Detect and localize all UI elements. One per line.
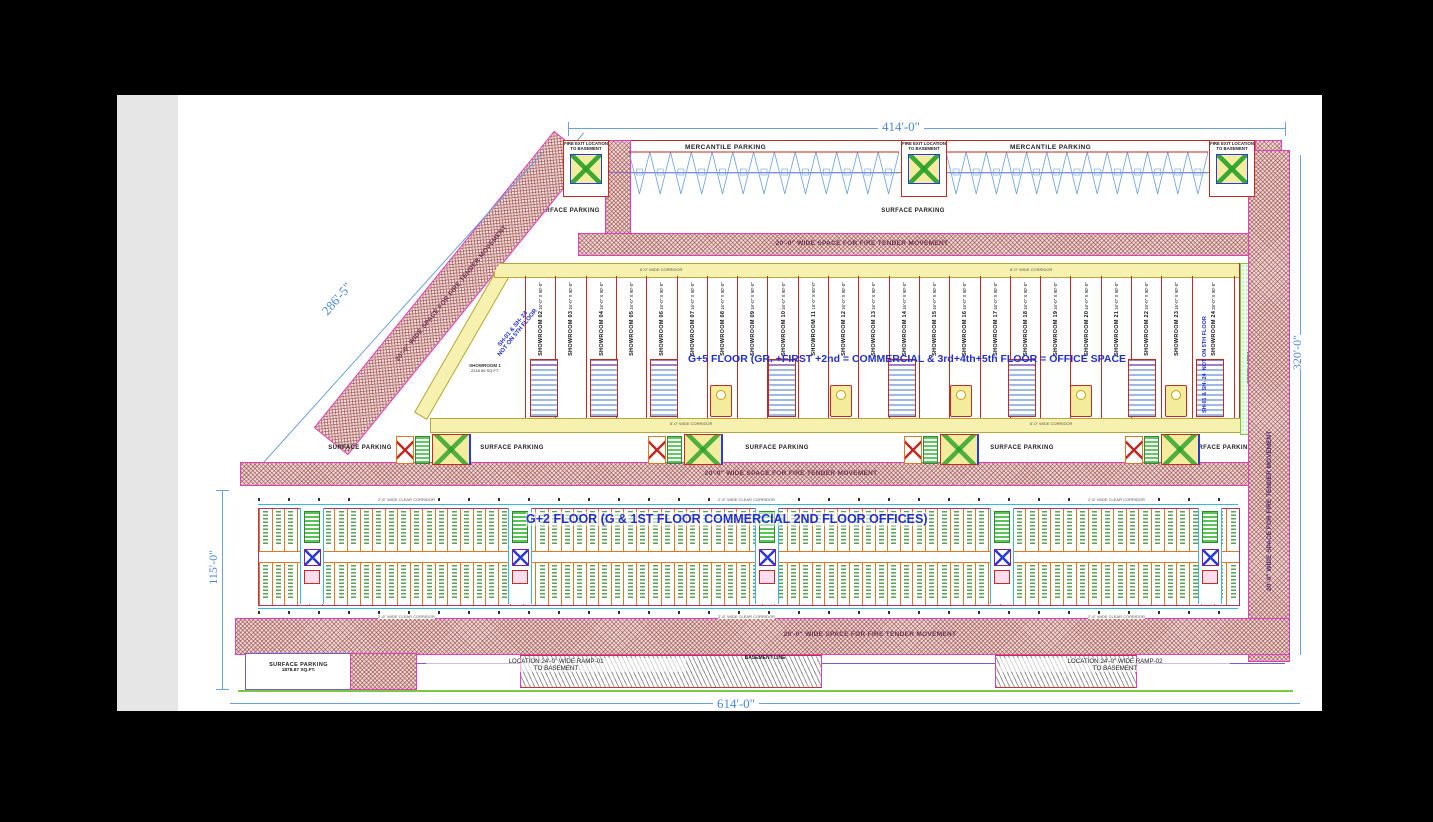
shop-cell — [787, 563, 800, 605]
showroom-size: 16'-0" X 90'-0" — [1114, 282, 1119, 310]
service-core — [1165, 385, 1187, 417]
stair-icon — [415, 436, 430, 464]
clear-corridor-label: 2'-6" WIDE CLEAR CORRIDOR — [718, 497, 775, 502]
shop-cell — [334, 563, 347, 605]
lift-icon — [1202, 549, 1219, 566]
shop-cell — [686, 563, 699, 605]
lower-stair-core — [1198, 508, 1222, 604]
shop-cell — [724, 563, 737, 605]
shop-cell — [485, 563, 498, 605]
g5-floor-annotation: G+5 FLOOR (GR. +FIRST +2nd = COMMERCIAL … — [688, 353, 1126, 365]
showroom-label-wrap: SHOWROOM 1216'-0" X 90'-0" — [829, 282, 859, 356]
lift-stair-core — [888, 359, 916, 417]
showroom-name: SHOWROOM 06 — [659, 311, 665, 356]
corridor-label: 8'-0" WIDE CORRIDOR — [640, 267, 682, 272]
shop-cell — [372, 509, 385, 551]
shop-cell — [485, 509, 498, 551]
shop-cell — [1164, 509, 1177, 551]
fire-exit-room-icon — [940, 434, 979, 465]
surface-parking-box: SURFACE PARKING 1878.87 SQ.FT. — [245, 653, 352, 690]
showroom-name: SHOWROOM 13 — [871, 311, 877, 356]
surface-parking-label-mid: SURFACE PARKING — [717, 445, 837, 451]
shop-cell — [385, 563, 398, 605]
showroom-label: SHOWROOM 0816'-0" X 90'-0" — [714, 282, 732, 356]
shop-cell — [1076, 509, 1089, 551]
shop-cell — [435, 563, 448, 605]
shop-cell — [460, 563, 473, 605]
mercantile-parking-label-2: MERCANTILE PARKING — [1008, 144, 1093, 151]
showroom-size: 16'-0" X 90'-0" — [932, 282, 937, 310]
showroom1-area: 2218.56 SQ.FT. — [450, 368, 520, 373]
showroom-name: SHOWROOM 16 — [962, 311, 968, 356]
lift-stair-core — [1008, 359, 1036, 417]
clear-corridor-label: 2'-6" WIDE CLEAR CORRIDOR — [378, 614, 435, 619]
surface-parking-label-topcenter: SURFACE PARKING — [853, 208, 973, 214]
fire-tender-band-right: 20'-0" WIDE SPACE FOR FIRE TENDER MOVEME… — [1248, 150, 1290, 662]
sh-note-line2: NOT ON 5TH FLOOR — [1202, 316, 1208, 370]
showroom-name: SHOWROOM 11 — [811, 311, 817, 356]
shop-row-bottom — [259, 563, 1239, 605]
dimension-tick — [568, 122, 569, 136]
shop-cell — [925, 563, 938, 605]
shop-cell — [1088, 563, 1101, 605]
shop-cell — [1113, 563, 1126, 605]
showroom-name: SHOWROOM 24 — [1211, 311, 1217, 356]
shop-cell — [372, 563, 385, 605]
basement-line-label-bottom: BASEMENT LINE — [705, 655, 825, 661]
showroom-label: SHOWROOM 1416'-0" X 90'-0" — [896, 282, 914, 356]
showroom-label-wrap: SHOWROOM 2316'-0" X 90'-0" — [1162, 282, 1192, 356]
shop-cell — [824, 563, 837, 605]
shop-cell — [963, 563, 976, 605]
shop-cell — [347, 563, 360, 605]
surface-parking-label-mid: SURFACE PARKING — [962, 445, 1082, 451]
surface-parking-area: 1878.87 SQ.FT. — [246, 668, 351, 673]
showroom-label: SHOWROOM 1916'-0" X 90'-0" — [1047, 282, 1065, 356]
showroom-label-wrap: SHOWROOM 2016'-0" X 90'-0" — [1071, 282, 1101, 356]
stair-icon — [1144, 436, 1159, 464]
shop-cell — [284, 509, 297, 551]
shop-cell — [272, 509, 285, 551]
ramp2-line1: LOCATION 24'-0" WIDE RAMP-02 — [1000, 658, 1230, 665]
showroom-name: SHOWROOM 23 — [1174, 311, 1180, 356]
shop-cell — [1113, 509, 1126, 551]
showroom-strip: SHOWROOM 0316'-0" X 90'-0" — [555, 276, 586, 418]
corridor-label: 8'-0" WIDE CORRIDOR — [1030, 421, 1072, 426]
shop-cell — [586, 563, 599, 605]
showroom-strip: SHOWROOM 0716'-0" X 90'-0" — [677, 276, 708, 418]
g2-floor-annotation: G+2 FLOOR (G & 1ST FLOOR COMMERCIAL 2ND … — [526, 512, 928, 526]
shop-cell — [259, 563, 272, 605]
showroom-name: SHOWROOM 14 — [902, 311, 908, 356]
fire-tender-text-bottom: 20'-0" WIDE SPACE FOR FIRE TENDER MOVEME… — [784, 631, 957, 638]
showroom-name: SHOWROOM 12 — [841, 311, 847, 356]
site-boundary-green — [238, 690, 1293, 692]
showroom-label: SHOWROOM 2216'-0" X 90'-0" — [1138, 282, 1156, 356]
showroom-name: SHOWROOM 20 — [1084, 311, 1090, 356]
showroom-label: SHOWROOM 1316'-0" X 90'-0" — [865, 282, 883, 356]
fire-exit-box: FIRE EXIT LOCATION TO BASEMENT — [1209, 140, 1255, 197]
shop-cell — [1126, 563, 1139, 605]
showroom-size: 16'-0" X 90'-0" — [1144, 282, 1149, 310]
showroom-strip: SHOWROOM 1116'-0" X 90'-0" — [798, 276, 829, 418]
dimension-line-left — [222, 490, 223, 690]
shop-cell — [259, 509, 272, 551]
shop-cell — [598, 563, 611, 605]
fire-tender-band-middle: 20'-0" WIDE SPACE FOR FIRE TENDER MOVEME… — [240, 462, 1250, 486]
shop-cell — [360, 509, 373, 551]
showroom-label: SHOWROOM 0916'-0" X 90'-0" — [744, 282, 762, 356]
shop-cell — [812, 563, 825, 605]
fire-tender-band-top: 20'-0" WIDE SPACE FOR FIRE TENDER MOVEME… — [578, 233, 1282, 256]
shop-cell — [334, 509, 347, 551]
showroom-label-wrap: SHOWROOM 0816'-0" X 90'-0" — [708, 282, 738, 356]
shop-cell — [460, 509, 473, 551]
shop-cell — [1151, 563, 1164, 605]
showroom-label-wrap: SHOWROOM 0716'-0" X 90'-0" — [678, 282, 708, 356]
showroom-size: 16'-0" X 90'-0" — [599, 282, 604, 310]
dimension-line-right — [1300, 155, 1301, 655]
lift-stair-core — [530, 359, 558, 417]
shop-cell — [1101, 509, 1114, 551]
shop-cell — [447, 509, 460, 551]
shop-cell — [862, 563, 875, 605]
shop-cell — [837, 563, 850, 605]
showroom-size: 16'-0" X 90'-0" — [690, 282, 695, 310]
lift-icon — [994, 549, 1011, 566]
showroom-label: SHOWROOM 0716'-0" X 90'-0" — [684, 282, 702, 356]
shop-cell — [473, 509, 486, 551]
stair-lift-cluster — [904, 433, 980, 465]
shop-cell — [1050, 563, 1063, 605]
stair-icon — [667, 436, 682, 464]
ramp2-label: LOCATION 24'-0" WIDE RAMP-02 TO BASEMENT — [1000, 658, 1230, 672]
showroom-size: 16'-0" X 90'-0" — [993, 282, 998, 310]
shop-cell — [397, 563, 410, 605]
showroom-name: SHOWROOM 15 — [932, 311, 938, 356]
shop-cell — [736, 563, 749, 605]
shop-cell — [1226, 509, 1239, 551]
lift-icon — [904, 436, 922, 464]
lobby-icon — [304, 570, 320, 584]
shop-cell — [1126, 509, 1139, 551]
showroom-size: 16'-0" X 90'-0" — [720, 282, 725, 310]
service-core — [1070, 385, 1092, 417]
showroom-name: SHOWROOM 02 — [538, 311, 544, 356]
dimension-tick — [216, 490, 229, 491]
clear-corridor-label: 2'-6" WIDE CLEAR CORRIDOR — [718, 614, 775, 619]
showroom-label-wrap: SHOWROOM 1116'-0" X 90'-0" — [799, 282, 829, 356]
viewer-canvas: 414'-0" MERCANTILE PARKING MERCANTILE PA… — [0, 0, 1433, 822]
showroom-size: 16'-0" X 90'-0" — [538, 282, 543, 310]
lower-stair-core — [300, 508, 324, 604]
shop-cell — [1038, 509, 1051, 551]
stair-icon — [994, 511, 1010, 543]
showroom-label: SHOWROOM 0516'-0" X 90'-0" — [623, 282, 641, 356]
floor-plan-sheet: 414'-0" MERCANTILE PARKING MERCANTILE PA… — [178, 95, 1322, 711]
lower-bottom-corridor-line — [258, 608, 1238, 609]
showroom-label-wrap: SHOWROOM 1316'-0" X 90'-0" — [859, 282, 889, 356]
showroom-strip: SHOWROOM 1916'-0" X 90'-0" — [1040, 276, 1071, 418]
stair-symbol-icon — [570, 154, 602, 184]
stair-symbol-icon — [908, 154, 940, 184]
fire-exit-label: FIRE EXIT LOCATION TO BASEMENT — [902, 142, 946, 152]
shop-cell — [975, 509, 988, 551]
lift-stair-core — [1128, 359, 1156, 417]
showroom-label-wrap: SHOWROOM 1016'-0" X 90'-0" — [768, 282, 798, 356]
showroom-strip: SHOWROOM 1316'-0" X 90'-0" — [858, 276, 889, 418]
showroom-label: SHOWROOM 1716'-0" X 90'-0" — [987, 282, 1005, 356]
shop-cell — [963, 509, 976, 551]
shop-cell — [422, 509, 435, 551]
showroom-label-wrap: SHOWROOM 0916'-0" X 90'-0" — [738, 282, 768, 356]
fire-tender-text-top: 20'-0" WIDE SPACE FOR FIRE TENDER MOVEME… — [776, 240, 949, 247]
showroom-size: 16'-0" X 90'-0" — [659, 282, 664, 310]
fire-exit-box: FIRE EXIT LOCATION TO BASEMENT — [563, 140, 609, 197]
showroom-end-wall — [1234, 276, 1235, 418]
lift-stair-core — [590, 359, 618, 417]
showroom-name: SHOWROOM 09 — [750, 311, 756, 356]
dimension-line-top — [568, 128, 1286, 129]
shop-cell — [887, 563, 900, 605]
dimension-label-left: 115'-0" — [206, 550, 221, 585]
showroom-label: SHOWROOM 1616'-0" X 90'-0" — [956, 282, 974, 356]
showroom-name: SHOWROOM 17 — [993, 311, 999, 356]
shop-cell — [699, 563, 712, 605]
dimension-label-diagonal: 286'-5" — [318, 279, 355, 318]
showroom-size: 16'-0" X 90'-0" — [1053, 282, 1058, 310]
shop-cell — [1025, 563, 1038, 605]
stair-icon — [304, 511, 320, 543]
ramp1-line2: TO BASEMENT — [426, 665, 686, 672]
showroom-strip: SHOWROOM 1516'-0" X 90'-0" — [919, 276, 950, 418]
showroom-label-wrap: SHOWROOM 0316'-0" X 90'-0" — [556, 282, 586, 356]
stair-icon — [923, 436, 938, 464]
showroom-name: SHOWROOM 04 — [599, 311, 605, 356]
lobby-icon — [512, 570, 528, 584]
showroom-label-wrap: SHOWROOM 1416'-0" X 90'-0" — [890, 282, 920, 356]
fire-tender-text-right: 20'-0" WIDE SPACE FOR FIRE TENDER MOVEME… — [1266, 211, 1273, 591]
shop-cell — [1164, 563, 1177, 605]
showroom-size: 16'-0" X 90'-0" — [871, 282, 876, 310]
shop-cell — [360, 563, 373, 605]
shop-cell — [1226, 563, 1239, 605]
service-core — [710, 385, 732, 417]
shop-cell — [648, 563, 661, 605]
shop-cell — [950, 509, 963, 551]
showroom-size: 16'-0" X 90'-0" — [1084, 282, 1089, 310]
shop-cell — [435, 509, 448, 551]
shop-cell — [1025, 509, 1038, 551]
stair-lift-cluster — [648, 433, 724, 465]
lift-stair-core — [768, 359, 796, 417]
showroom-name: SHOWROOM 18 — [1023, 311, 1029, 356]
lobby-icon — [759, 570, 775, 584]
shop-cell — [272, 563, 285, 605]
shop-cell — [561, 563, 574, 605]
shop-cell — [1063, 563, 1076, 605]
lower-stair-core — [990, 508, 1014, 604]
dimension-label-right: 320'-0" — [1290, 335, 1305, 370]
ramp1-line1: LOCATION 24'-0" WIDE RAMP-01 — [426, 658, 686, 665]
dimension-label-top: 414'-0" — [878, 119, 924, 135]
sh-note-line1: SH-01 & SH- 24 — [1202, 373, 1208, 413]
showroom-size: 16'-0" X 90'-0" — [811, 282, 816, 310]
dimension-tick — [1285, 122, 1286, 136]
showroom-label: SHOWROOM 2116'-0" X 90'-0" — [1108, 282, 1126, 356]
lift-stair-core — [1196, 359, 1224, 417]
shop-cell — [1151, 509, 1164, 551]
showroom-label-wrap: SHOWROOM 0416'-0" X 90'-0" — [587, 282, 617, 356]
shop-cell — [799, 563, 812, 605]
shop-cell — [1050, 509, 1063, 551]
showroom-size: 16'-0" X 90'-0" — [902, 282, 907, 310]
showroom-label-wrap: SHOWROOM 1716'-0" X 90'-0" — [981, 282, 1011, 356]
shop-cell — [849, 563, 862, 605]
showroom-size: 16'-0" X 90'-0" — [1174, 282, 1179, 310]
dimension-tick — [216, 689, 229, 690]
dimension-label-bottom: 614'-0" — [713, 696, 759, 711]
shop-cell — [975, 563, 988, 605]
showroom-label-wrap: SHOWROOM 1816'-0" X 90'-0" — [1011, 282, 1041, 356]
showroom-strip: SHOWROOM 0916'-0" X 90'-0" — [737, 276, 768, 418]
lobby-icon — [994, 570, 1010, 584]
shop-cell — [1038, 563, 1051, 605]
shop-cell — [535, 563, 548, 605]
fire-exit-room-icon — [432, 434, 471, 465]
shop-cell — [1101, 563, 1114, 605]
showroom-size: 16'-0" X 90'-0" — [568, 282, 573, 310]
shop-cell — [1013, 563, 1026, 605]
lower-top-corridor-line — [258, 504, 1238, 505]
service-core — [830, 385, 852, 417]
shop-cell — [573, 563, 586, 605]
showroom-label-wrap: SHOWROOM 1916'-0" X 90'-0" — [1041, 282, 1071, 356]
showroom-size: 16'-0" X 90'-0" — [962, 282, 967, 310]
showroom-label: SHOWROOM 0416'-0" X 90'-0" — [593, 282, 611, 356]
shop-cell — [912, 563, 925, 605]
shop-cell — [661, 563, 674, 605]
ramp2-line2: TO BASEMENT — [1000, 665, 1230, 672]
shop-cell — [623, 563, 636, 605]
lift-icon — [648, 436, 666, 464]
showroom-name: SHOWROOM 08 — [720, 311, 726, 356]
shop-cell — [1063, 509, 1076, 551]
showroom-name: SHOWROOM 07 — [690, 311, 696, 356]
showroom-name: SHOWROOM 21 — [1114, 311, 1120, 356]
showroom-name: SHOWROOM 03 — [568, 311, 574, 356]
shop-cell — [611, 563, 624, 605]
shop-cell — [1138, 563, 1151, 605]
hatched-pier-bottom — [350, 653, 417, 690]
showroom-name: SHOWROOM 10 — [781, 311, 787, 356]
fire-exit-box: FIRE EXIT LOCATION TO BASEMENT — [901, 140, 947, 197]
shop-cell — [1076, 563, 1089, 605]
showroom-strip: SHOWROOM 0516'-0" X 90'-0" — [616, 276, 647, 418]
clear-corridor-label: 2'-6" WIDE CLEAR CORRIDOR — [1088, 497, 1145, 502]
showroom-label: SHOWROOM 1816'-0" X 90'-0" — [1017, 282, 1035, 356]
lift-icon — [396, 436, 414, 464]
corridor-label: 8'-0" WIDE CORRIDOR — [1010, 267, 1052, 272]
shop-cell — [397, 509, 410, 551]
shop-cell — [473, 563, 486, 605]
shop-cell — [1013, 509, 1026, 551]
shop-cell — [410, 563, 423, 605]
upper-building-g5: 8'-0" WIDE CORRIDOR 8'-0" WIDE CORRIDOR … — [390, 263, 1258, 433]
lift-icon — [304, 549, 321, 566]
showroom-size: 16'-0" X 90'-0" — [629, 282, 634, 310]
shop-cell — [284, 563, 297, 605]
clear-corridor-label: 2'-6" WIDE CLEAR CORRIDOR — [378, 497, 435, 502]
showroom-size: 16'-0" X 90'-0" — [1023, 282, 1028, 310]
showroom1-label: SHOWROOM 1 2218.56 SQ.FT. — [450, 363, 520, 373]
showroom-label-wrap: SHOWROOM 2116'-0" X 90'-0" — [1102, 282, 1132, 356]
showroom-label: SHOWROOM 1016'-0" X 90'-0" — [775, 282, 793, 356]
shop-cell — [347, 509, 360, 551]
shop-cell — [950, 563, 963, 605]
showroom-label: SHOWROOM 2316'-0" X 90'-0" — [1168, 282, 1186, 356]
showroom-label: SHOWROOM 0216'-0" X 90'-0" — [532, 282, 550, 356]
showroom-label-wrap: SHOWROOM 1616'-0" X 90'-0" — [950, 282, 980, 356]
showroom-label: SHOWROOM 2016'-0" X 90'-0" — [1078, 282, 1096, 356]
ramp1-label: LOCATION 24'-0" WIDE RAMP-01 TO BASEMENT — [426, 658, 686, 672]
lift-icon — [759, 549, 776, 566]
fire-tender-band-bottom: 20'-0" WIDE SPACE FOR FIRE TENDER MOVEME… — [235, 618, 1290, 655]
lift-stair-core — [650, 359, 678, 417]
lift-icon — [512, 549, 529, 566]
mercantile-parking-label-1: MERCANTILE PARKING — [683, 144, 768, 151]
service-core — [950, 385, 972, 417]
lower-building-g2: G+2 FLOOR (G & 1ST FLOOR COMMERCIAL 2ND … — [258, 498, 1238, 616]
clear-corridor-label: 2'-6" WIDE CLEAR CORRIDOR — [1088, 614, 1145, 619]
fire-tender-text-middle: 20'-0" WIDE SPACE FOR FIRE TENDER MOVEME… — [705, 470, 878, 477]
showroom-size: 28'-0" X 90'-0" — [1211, 282, 1216, 310]
showroom-label: SHOWROOM 1516'-0" X 90'-0" — [926, 282, 944, 356]
fire-exit-label: FIRE EXIT LOCATION TO BASEMENT — [1210, 142, 1254, 152]
shop-cell — [900, 563, 913, 605]
central-spine — [259, 551, 1239, 563]
shop-cell — [1176, 509, 1189, 551]
fire-exit-label: FIRE EXIT LOCATION TO BASEMENT — [564, 142, 608, 152]
shop-cell — [447, 563, 460, 605]
showroom-size: 16'-0" X 90'-0" — [750, 282, 755, 310]
shop-cell — [636, 563, 649, 605]
showroom-name: SHOWROOM 05 — [629, 311, 635, 356]
stair-icon — [1202, 511, 1218, 543]
showroom-name: SHOWROOM 22 — [1144, 311, 1150, 356]
shop-cell — [875, 563, 888, 605]
showroom-label: SHOWROOM 0616'-0" X 90'-0" — [653, 282, 671, 356]
showroom-strip: SHOWROOM 1716'-0" X 90'-0" — [980, 276, 1011, 418]
showroom-label-wrap: SHOWROOM 1516'-0" X 90'-0" — [920, 282, 950, 356]
corridor-label: 8'-0" WIDE CORRIDOR — [670, 421, 712, 426]
shop-cell — [410, 509, 423, 551]
lobby-icon — [1202, 570, 1218, 584]
shop-cell — [385, 509, 398, 551]
stair-lift-cluster — [396, 433, 472, 465]
showroom-size: 16'-0" X 90'-0" — [841, 282, 846, 310]
showroom-name: SHOWROOM 19 — [1053, 311, 1059, 356]
shop-cell — [674, 563, 687, 605]
shop-cell — [548, 563, 561, 605]
stair-symbol-icon — [1216, 154, 1248, 184]
showroom-label: SHOWROOM 1216'-0" X 90'-0" — [835, 282, 853, 356]
showroom-label-wrap: SHOWROOM 2428'-0" X 90'-0" — [1193, 282, 1235, 356]
showroom-label-wrap: SHOWROOM 0616'-0" X 90'-0" — [647, 282, 677, 356]
shop-cell — [422, 563, 435, 605]
fire-exit-room-icon — [1161, 434, 1200, 465]
adjacent-page-edge — [117, 95, 178, 711]
